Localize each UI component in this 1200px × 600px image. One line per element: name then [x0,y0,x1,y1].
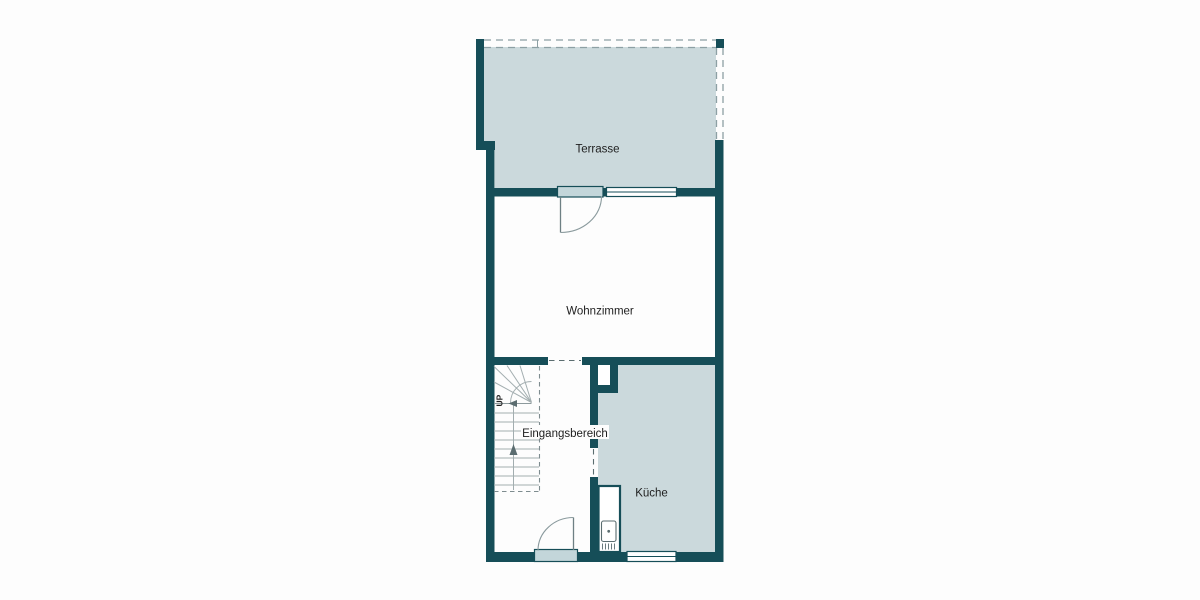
entrance-door-swing-arc [538,518,574,551]
wall-bottom-c [676,552,724,562]
duct-niche [598,365,610,385]
stair-arrow-left [509,400,518,407]
terrace-door [558,187,604,233]
wall-top-interior-a [494,188,558,197]
wall-niche-horizontal [598,385,618,393]
wall-bottom-b [577,552,627,562]
room-label-terrasse: Terrasse [575,144,619,156]
wall-bottom-a [486,552,535,562]
terrace-open-edge-right [717,48,724,140]
room-label-eingangsbereich: Eingangsbereich [522,428,608,440]
wall-mid-a [490,357,548,365]
entrance-door [535,518,578,562]
living-room-window [607,188,677,197]
terrace-door-panel [558,187,604,198]
wall-terrace-post-right [716,39,724,48]
room-label-kueche: Küche [635,488,668,500]
kitchen-counter [599,486,621,552]
stair-step-lines [494,413,539,485]
wall-top-interior-b [676,188,716,197]
terrasse-area [484,47,716,188]
room-label-wohnzimmer: Wohnzimmer [566,306,634,318]
wall-right [715,140,724,562]
terrace-open-edge-top [484,40,716,48]
floorplan-svg: UP Terrasse Wohnzimmer Eingangsbereich K… [0,0,1200,600]
wall-left [486,141,495,562]
wall-terrace-left-upper [476,39,484,149]
entrance-door-panel [535,550,578,562]
stove-knob-dot [607,530,610,533]
stair-up-label: UP [495,394,505,406]
wall-mid-b [582,357,716,365]
kitchen-window [627,552,676,562]
terrace-door-swing-arc [561,197,602,233]
wall-kitchen-lower [590,477,598,562]
floorplan-canvas: UP Terrasse Wohnzimmer Eingangsbereich K… [0,0,1200,600]
